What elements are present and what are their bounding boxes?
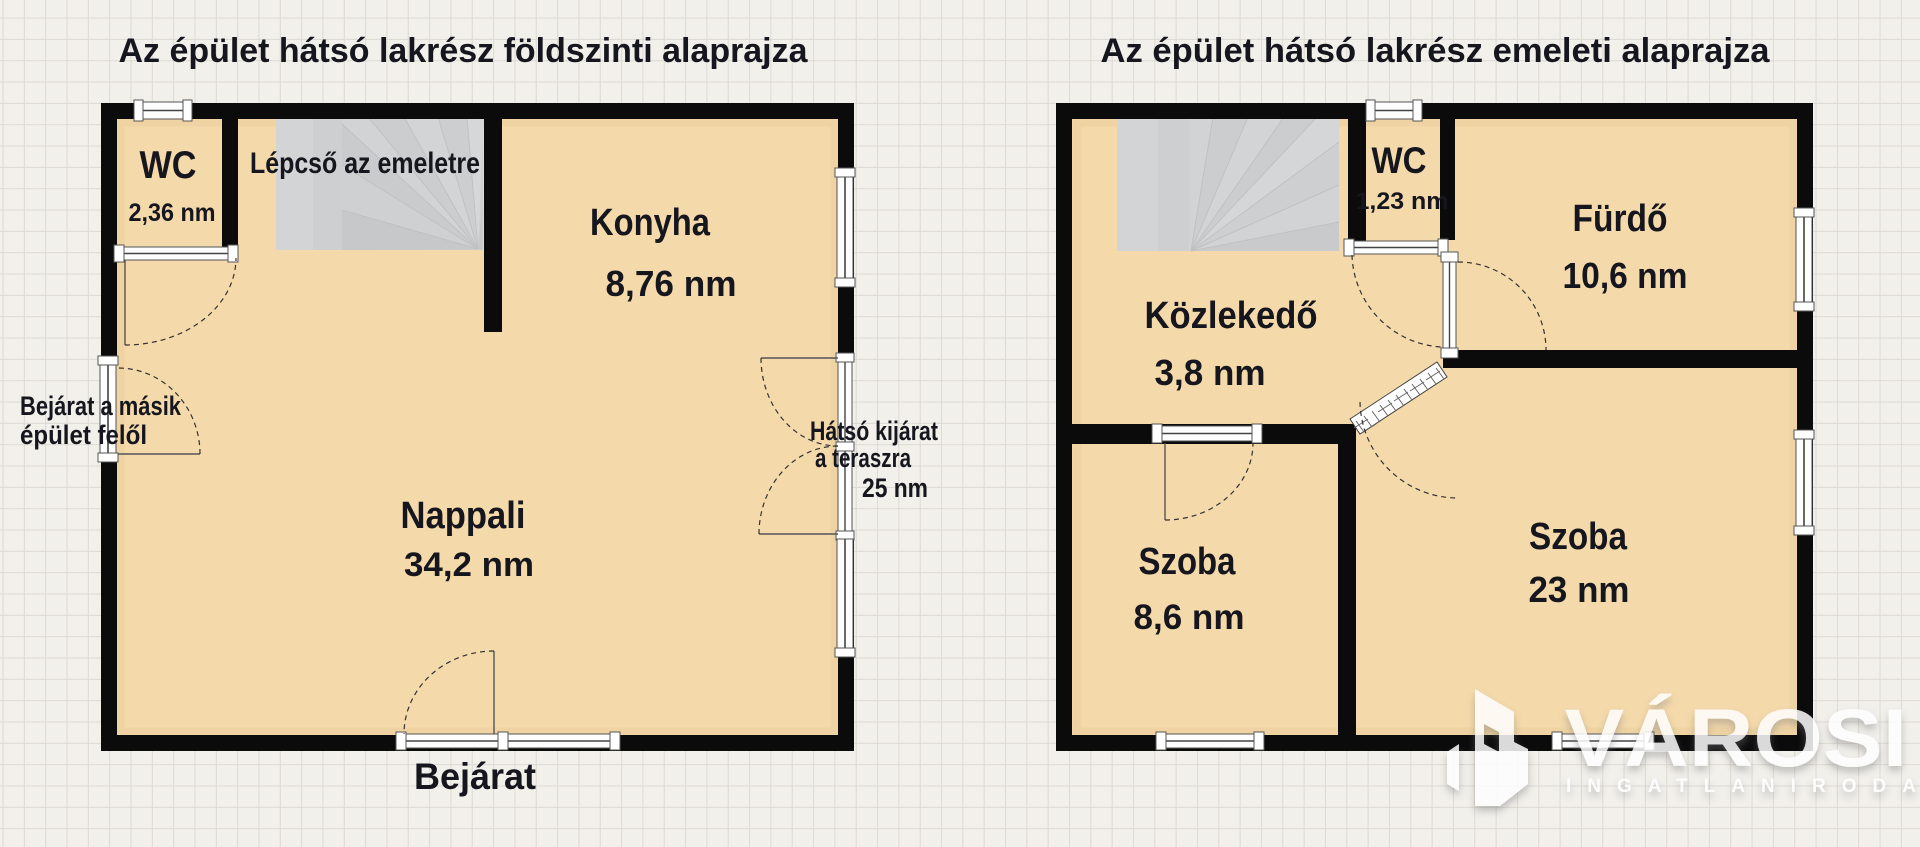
svg-text:10,6 nm: 10,6 nm xyxy=(1563,255,1688,296)
svg-text:WC: WC xyxy=(1372,140,1427,181)
svg-text:34,2 nm: 34,2 nm xyxy=(404,546,534,584)
svg-text:WC: WC xyxy=(140,144,197,187)
svg-text:Bejárat a másik: Bejárat a másik xyxy=(20,391,182,421)
svg-text:2,36 nm: 2,36 nm xyxy=(129,199,216,227)
svg-text:Közlekedő: Közlekedő xyxy=(1145,295,1318,337)
svg-text:Nappali: Nappali xyxy=(401,495,526,537)
svg-text:Hátsó kijárat: Hátsó kijárat xyxy=(810,416,938,446)
svg-text:épület felől: épület felől xyxy=(20,420,147,450)
svg-text:25 nm: 25 nm xyxy=(862,473,928,503)
svg-text:Bejárat: Bejárat xyxy=(414,756,536,797)
svg-text:Szoba: Szoba xyxy=(1139,541,1237,583)
svg-text:Fürdő: Fürdő xyxy=(1573,198,1668,240)
svg-text:VÁROSI: VÁROSI xyxy=(1565,693,1908,784)
svg-text:Konyha: Konyha xyxy=(590,202,711,244)
svg-text:1,23 nm: 1,23 nm xyxy=(1356,188,1449,215)
svg-text:Lépcső az emeletre: Lépcső az emeletre xyxy=(250,147,480,180)
svg-text:8,6 nm: 8,6 nm xyxy=(1134,598,1245,637)
svg-text:Az épület hátsó lakrész emelet: Az épület hátsó lakrész emeleti alaprajz… xyxy=(1101,32,1771,70)
svg-text:8,76 nm: 8,76 nm xyxy=(606,263,737,304)
svg-text:Az épület hátsó lakrész földsz: Az épület hátsó lakrész földszinti alapr… xyxy=(119,32,809,70)
svg-text:Szoba: Szoba xyxy=(1529,516,1628,558)
svg-text:a teraszra: a teraszra xyxy=(815,443,912,473)
svg-text:23 nm: 23 nm xyxy=(1529,569,1630,610)
svg-text:3,8 nm: 3,8 nm xyxy=(1155,352,1266,393)
